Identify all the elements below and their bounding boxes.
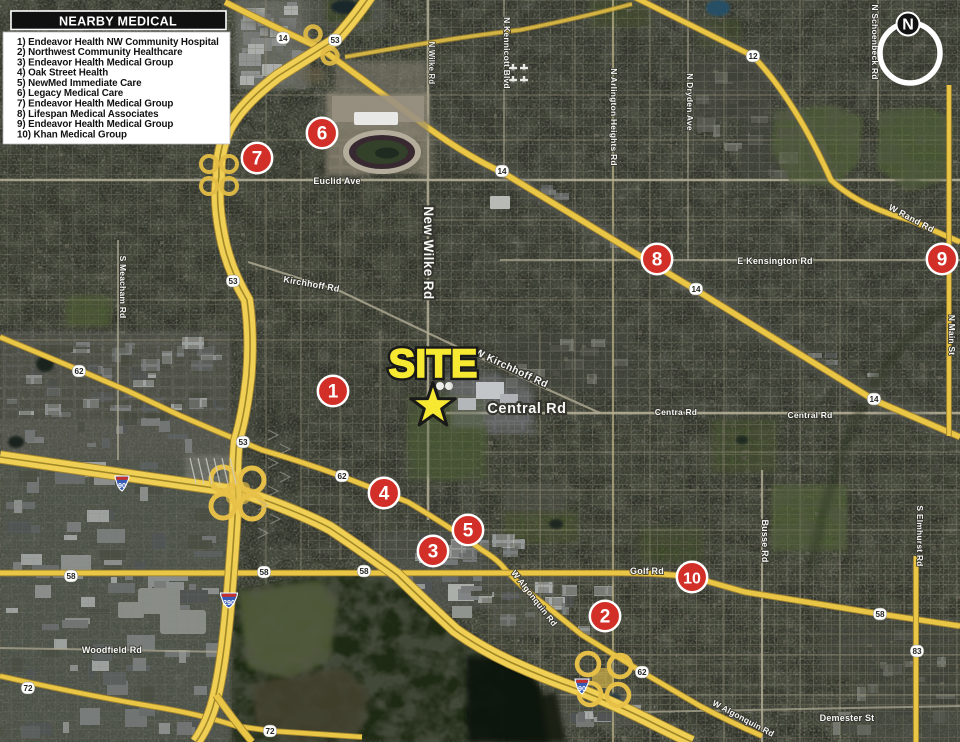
- svg-text:E Kensington Rd: E Kensington Rd: [737, 256, 813, 266]
- svg-text:5: 5: [463, 521, 474, 542]
- svg-text:10) Khan Medical Group: 10) Khan Medical Group: [17, 129, 127, 140]
- svg-text:Central Rd: Central Rd: [788, 410, 833, 420]
- svg-text:S Elmhurst Rd: S Elmhurst Rd: [915, 505, 925, 566]
- svg-text:Woodfield Rd: Woodfield Rd: [82, 645, 142, 655]
- svg-text:53: 53: [228, 277, 238, 286]
- svg-text:58: 58: [259, 568, 269, 577]
- svg-text:62: 62: [637, 668, 647, 677]
- svg-text:14: 14: [869, 395, 879, 404]
- svg-text:N Wilke Rd: N Wilke Rd: [427, 42, 436, 85]
- svg-text:Busse Rd: Busse Rd: [760, 519, 770, 562]
- svg-text:58: 58: [359, 567, 369, 576]
- svg-text:4: 4: [379, 484, 390, 505]
- svg-text:S Meacham Rd: S Meacham Rd: [118, 256, 128, 319]
- svg-text:290: 290: [223, 598, 235, 607]
- svg-text:1: 1: [328, 382, 339, 403]
- svg-text:Euclid Ave: Euclid Ave: [313, 176, 360, 186]
- svg-text:12: 12: [748, 52, 758, 61]
- svg-text:14: 14: [278, 34, 288, 43]
- svg-text:90: 90: [578, 684, 586, 693]
- svg-text:N Arlington Heights Rd: N Arlington Heights Rd: [609, 68, 619, 166]
- svg-text:62: 62: [74, 367, 84, 376]
- svg-text:Demester St: Demester St: [820, 713, 875, 723]
- svg-text:N Dryden Ave: N Dryden Ave: [685, 73, 695, 131]
- svg-text:New Wilke Rd: New Wilke Rd: [421, 206, 436, 299]
- svg-text:72: 72: [23, 684, 33, 693]
- svg-text:2: 2: [600, 607, 611, 628]
- svg-text:10: 10: [683, 571, 701, 588]
- svg-text:14: 14: [497, 167, 507, 176]
- svg-text:9: 9: [937, 250, 948, 271]
- svg-text:Central Rd: Central Rd: [487, 401, 566, 417]
- svg-text:62: 62: [337, 472, 347, 481]
- svg-text:58: 58: [66, 572, 76, 581]
- svg-text:8: 8: [652, 250, 663, 271]
- svg-text:53: 53: [330, 36, 340, 45]
- svg-text:SITE: SITE: [389, 342, 478, 386]
- svg-text:3: 3: [428, 542, 439, 563]
- svg-text:90: 90: [118, 481, 126, 490]
- svg-text:14: 14: [691, 285, 701, 294]
- svg-text:7: 7: [252, 149, 263, 170]
- svg-text:N Schoenbeck Rd: N Schoenbeck Rd: [870, 4, 880, 79]
- svg-text:58: 58: [875, 610, 885, 619]
- svg-text:N: N: [902, 17, 914, 34]
- svg-text:Centra Rd: Centra Rd: [655, 407, 697, 417]
- svg-text:72: 72: [265, 727, 275, 736]
- svg-text:NEARBY MEDICAL: NEARBY MEDICAL: [59, 15, 177, 29]
- svg-text:N Kennicott Blvd: N Kennicott Blvd: [502, 17, 512, 89]
- svg-text:N Main St: N Main St: [947, 315, 957, 356]
- svg-text:83: 83: [912, 647, 922, 656]
- svg-text:53: 53: [238, 438, 248, 447]
- svg-text:6: 6: [317, 124, 328, 145]
- svg-text:Golf Rd: Golf Rd: [630, 566, 664, 576]
